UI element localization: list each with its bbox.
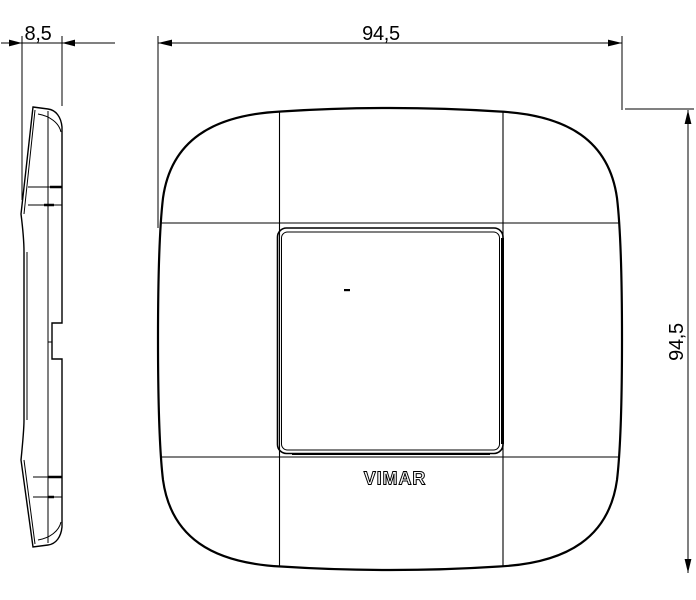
dimension-label-width: 94,5 [362, 23, 400, 45]
side-step-lines [28, 187, 62, 497]
height-arrow-top [685, 110, 692, 124]
height-arrow-bottom [685, 559, 692, 573]
depth-arrow-right [62, 40, 75, 47]
side-top-lip-curve [38, 114, 61, 132]
side-step-lines-thick [44, 187, 62, 497]
drawing-canvas: VIMAR 8,5 94,5 94,5 [0, 0, 696, 600]
depth-arrow-left [9, 40, 22, 47]
side-bottom-lip-curve [38, 522, 61, 540]
depth-dimension [1, 36, 115, 200]
dimension-label-height: 94,5 [666, 323, 688, 361]
side-view [21, 107, 62, 547]
brand-logo-text: VIMAR [364, 469, 427, 489]
plate-outline [158, 108, 622, 570]
width-arrow-left [158, 40, 172, 47]
width-arrow-right [608, 40, 622, 47]
front-view: VIMAR [155, 105, 625, 573]
dimension-label-depth: 8,5 [25, 23, 52, 45]
surface-mark [344, 289, 350, 291]
technical-drawing: VIMAR 8,5 94,5 94,5 [0, 0, 696, 600]
